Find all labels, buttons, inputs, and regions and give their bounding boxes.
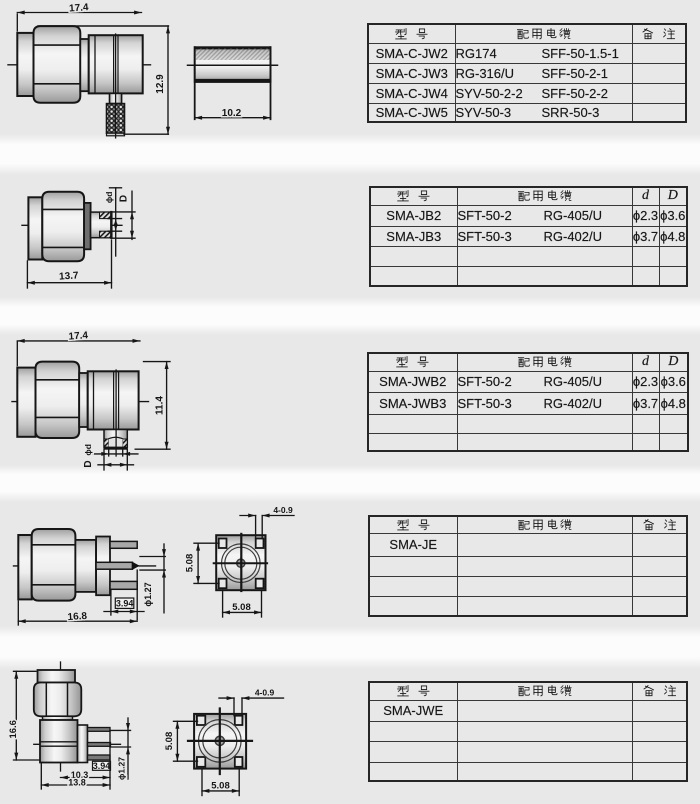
svg-text:ϕ1.27: ϕ1.27 <box>117 757 127 780</box>
svg-text:4-0.9: 4-0.9 <box>273 505 293 515</box>
svg-text:ϕ1.27: ϕ1.27 <box>143 582 153 606</box>
svg-text:D: D <box>119 195 130 202</box>
svg-text:17.4: 17.4 <box>68 330 89 342</box>
svg-text:3.94: 3.94 <box>93 761 111 771</box>
svg-text:5.08: 5.08 <box>232 602 251 613</box>
svg-text:ϕd: ϕd <box>104 192 114 204</box>
svg-text:ϕd: ϕd <box>83 444 93 456</box>
svg-text:5.08: 5.08 <box>211 780 230 791</box>
svg-text:5.08: 5.08 <box>164 732 175 751</box>
svg-text:D: D <box>83 460 94 467</box>
svg-text:16.6: 16.6 <box>8 720 19 739</box>
svg-text:5.08: 5.08 <box>185 554 196 573</box>
svg-text:13.8: 13.8 <box>68 778 86 788</box>
svg-text:3.94: 3.94 <box>116 599 134 609</box>
svg-text:4-0.9: 4-0.9 <box>255 688 275 698</box>
svg-text:12.9: 12.9 <box>155 74 166 94</box>
svg-text:17.4: 17.4 <box>69 2 90 14</box>
svg-text:13.7: 13.7 <box>59 270 80 282</box>
svg-text:10.2: 10.2 <box>222 108 242 119</box>
svg-text:16.8: 16.8 <box>67 611 88 623</box>
svg-text:11.4: 11.4 <box>154 396 165 415</box>
